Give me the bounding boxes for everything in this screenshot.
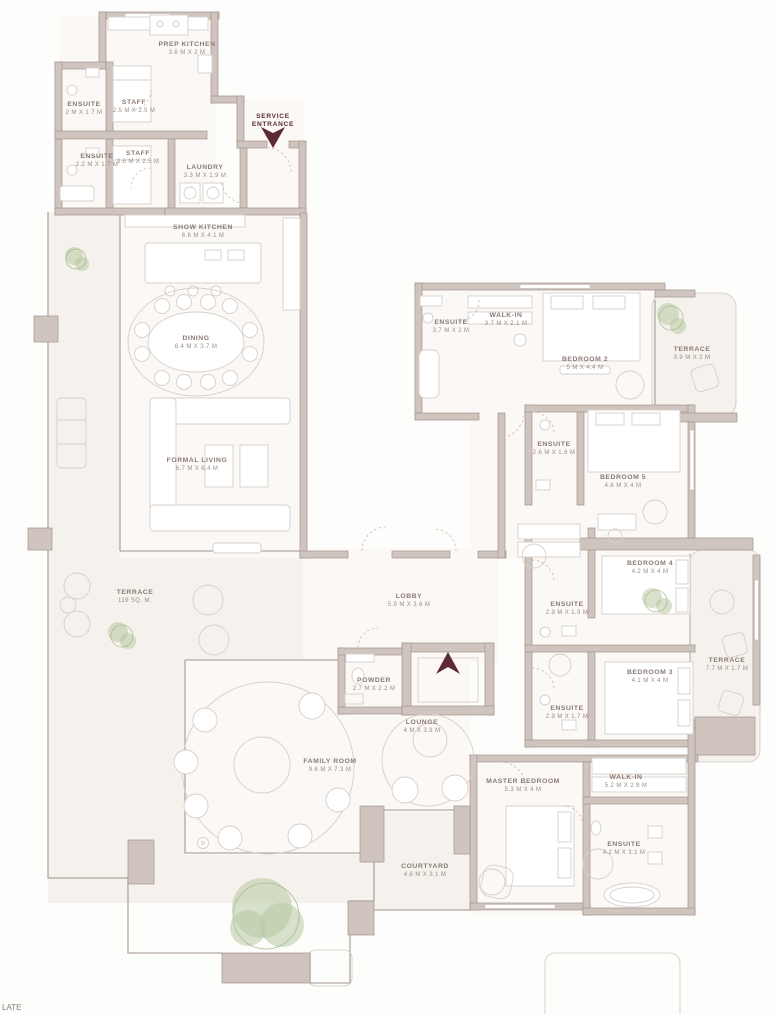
svg-text:3.6 M X 2 M: 3.6 M X 2 M <box>169 50 206 56</box>
floor-plan-page: PREP KITCHEN 3.6 M X 2 M ENSUITE 2 M X 1… <box>0 0 776 1014</box>
svg-text:ENSUITE: ENSUITE <box>607 841 640 848</box>
svg-text:4.2 M X 4 M: 4.2 M X 4 M <box>632 569 669 575</box>
svg-text:BEDROOM 2: BEDROOM 2 <box>562 356 608 363</box>
svg-text:STAFF: STAFF <box>126 150 150 157</box>
svg-text:3.7 M X 2.1 M: 3.7 M X 2.1 M <box>485 321 528 327</box>
svg-text:3.3 M X 1.9 M: 3.3 M X 1.9 M <box>184 173 227 179</box>
svg-text:TERRACE: TERRACE <box>117 589 154 596</box>
corner-partial-text: LATE <box>2 1003 21 1012</box>
svg-text:BEDROOM 3: BEDROOM 3 <box>627 669 673 676</box>
svg-text:BEDROOM 5: BEDROOM 5 <box>600 474 646 481</box>
svg-text:4.6 M X 3.1 M: 4.6 M X 3.1 M <box>404 872 447 878</box>
svg-text:4.1 M X 4 M: 4.1 M X 4 M <box>632 678 669 684</box>
svg-text:4.2 M X 3.1 M: 4.2 M X 3.1 M <box>603 850 646 856</box>
svg-text:ENTRANCE: ENTRANCE <box>252 121 294 128</box>
svg-text:TERRACE: TERRACE <box>674 346 711 353</box>
svg-text:4.6 M X 4 M: 4.6 M X 4 M <box>605 483 642 489</box>
floor-plan-drawing: PREP KITCHEN 3.6 M X 2 M ENSUITE 2 M X 1… <box>0 0 776 1014</box>
svg-text:SHOW KITCHEN: SHOW KITCHEN <box>173 224 233 231</box>
svg-text:LAUNDRY: LAUNDRY <box>187 164 224 171</box>
svg-text:7.7 M X 1.7 M: 7.7 M X 1.7 M <box>706 666 749 672</box>
svg-text:SERVICE: SERVICE <box>256 113 290 120</box>
svg-text:TERRACE: TERRACE <box>709 657 746 664</box>
svg-text:FAMILY ROOM: FAMILY ROOM <box>303 758 356 765</box>
svg-text:6.4 M X 3.7 M: 6.4 M X 3.7 M <box>175 344 218 350</box>
svg-text:6.7 M X 6.4 M: 6.7 M X 6.4 M <box>176 466 219 472</box>
svg-text:5.9 M X 3.6 M: 5.9 M X 3.6 M <box>388 602 431 608</box>
svg-text:BEDROOM 4: BEDROOM 4 <box>627 560 673 567</box>
svg-text:FORMAL LIVING: FORMAL LIVING <box>167 457 228 464</box>
svg-text:LOBBY: LOBBY <box>396 593 423 600</box>
svg-text:2.5 M X 2.5 M: 2.5 M X 2.5 M <box>113 108 156 114</box>
svg-text:DINING: DINING <box>182 335 209 342</box>
svg-text:ENSUITE: ENSUITE <box>80 153 113 160</box>
svg-text:ENSUITE: ENSUITE <box>67 101 100 108</box>
svg-text:ENSUITE: ENSUITE <box>550 705 583 712</box>
svg-text:2.7 M X 2.2 M: 2.7 M X 2.2 M <box>353 686 396 692</box>
svg-text:LOUNGE: LOUNGE <box>406 719 438 726</box>
svg-text:POWDER: POWDER <box>357 677 391 684</box>
svg-text:5.2 M X 2.8 M: 5.2 M X 2.8 M <box>605 783 648 789</box>
svg-text:2.9 M X 1.7 M: 2.9 M X 1.7 M <box>546 714 589 720</box>
svg-text:3.6 M X 2.5 M: 3.6 M X 2.5 M <box>117 159 160 165</box>
svg-text:WALK-IN: WALK-IN <box>490 312 523 319</box>
svg-text:9.6 M X 7.3 M: 9.6 M X 7.3 M <box>309 767 352 773</box>
svg-text:STAFF: STAFF <box>122 99 146 106</box>
svg-text:2 M X 1.7 M: 2 M X 1.7 M <box>66 110 103 116</box>
svg-text:6.6 M X 4.1 M: 6.6 M X 4.1 M <box>182 233 225 239</box>
svg-text:3.7 M X 2 M: 3.7 M X 2 M <box>433 328 470 334</box>
svg-text:ENSUITE: ENSUITE <box>434 319 467 326</box>
svg-text:2.6 M X 1.6 M: 2.6 M X 1.6 M <box>533 450 576 456</box>
svg-text:WALK-IN: WALK-IN <box>610 774 643 781</box>
svg-text:2.2 M X 1.7 M: 2.2 M X 1.7 M <box>76 162 119 168</box>
svg-text:3.9 M X 2 M: 3.9 M X 2 M <box>674 355 711 361</box>
svg-text:5.3 M X 4 M: 5.3 M X 4 M <box>505 787 542 793</box>
svg-text:COURTYARD: COURTYARD <box>401 863 449 870</box>
svg-text:ENSUITE: ENSUITE <box>537 441 570 448</box>
svg-text:ENSUITE: ENSUITE <box>550 601 583 608</box>
svg-text:4 M X 3.9 M: 4 M X 3.9 M <box>404 728 441 734</box>
svg-text:PREP KITCHEN: PREP KITCHEN <box>158 41 215 48</box>
svg-text:2.9 M X 1.9 M: 2.9 M X 1.9 M <box>546 610 589 616</box>
svg-text:MASTER BEDROOM: MASTER BEDROOM <box>486 778 560 785</box>
service-entrance-label: SERVICE ENTRANCE <box>252 113 294 128</box>
svg-text:5 M X 4.4 M: 5 M X 4.4 M <box>567 365 604 371</box>
svg-text:119 SQ. M.: 119 SQ. M. <box>118 598 152 604</box>
